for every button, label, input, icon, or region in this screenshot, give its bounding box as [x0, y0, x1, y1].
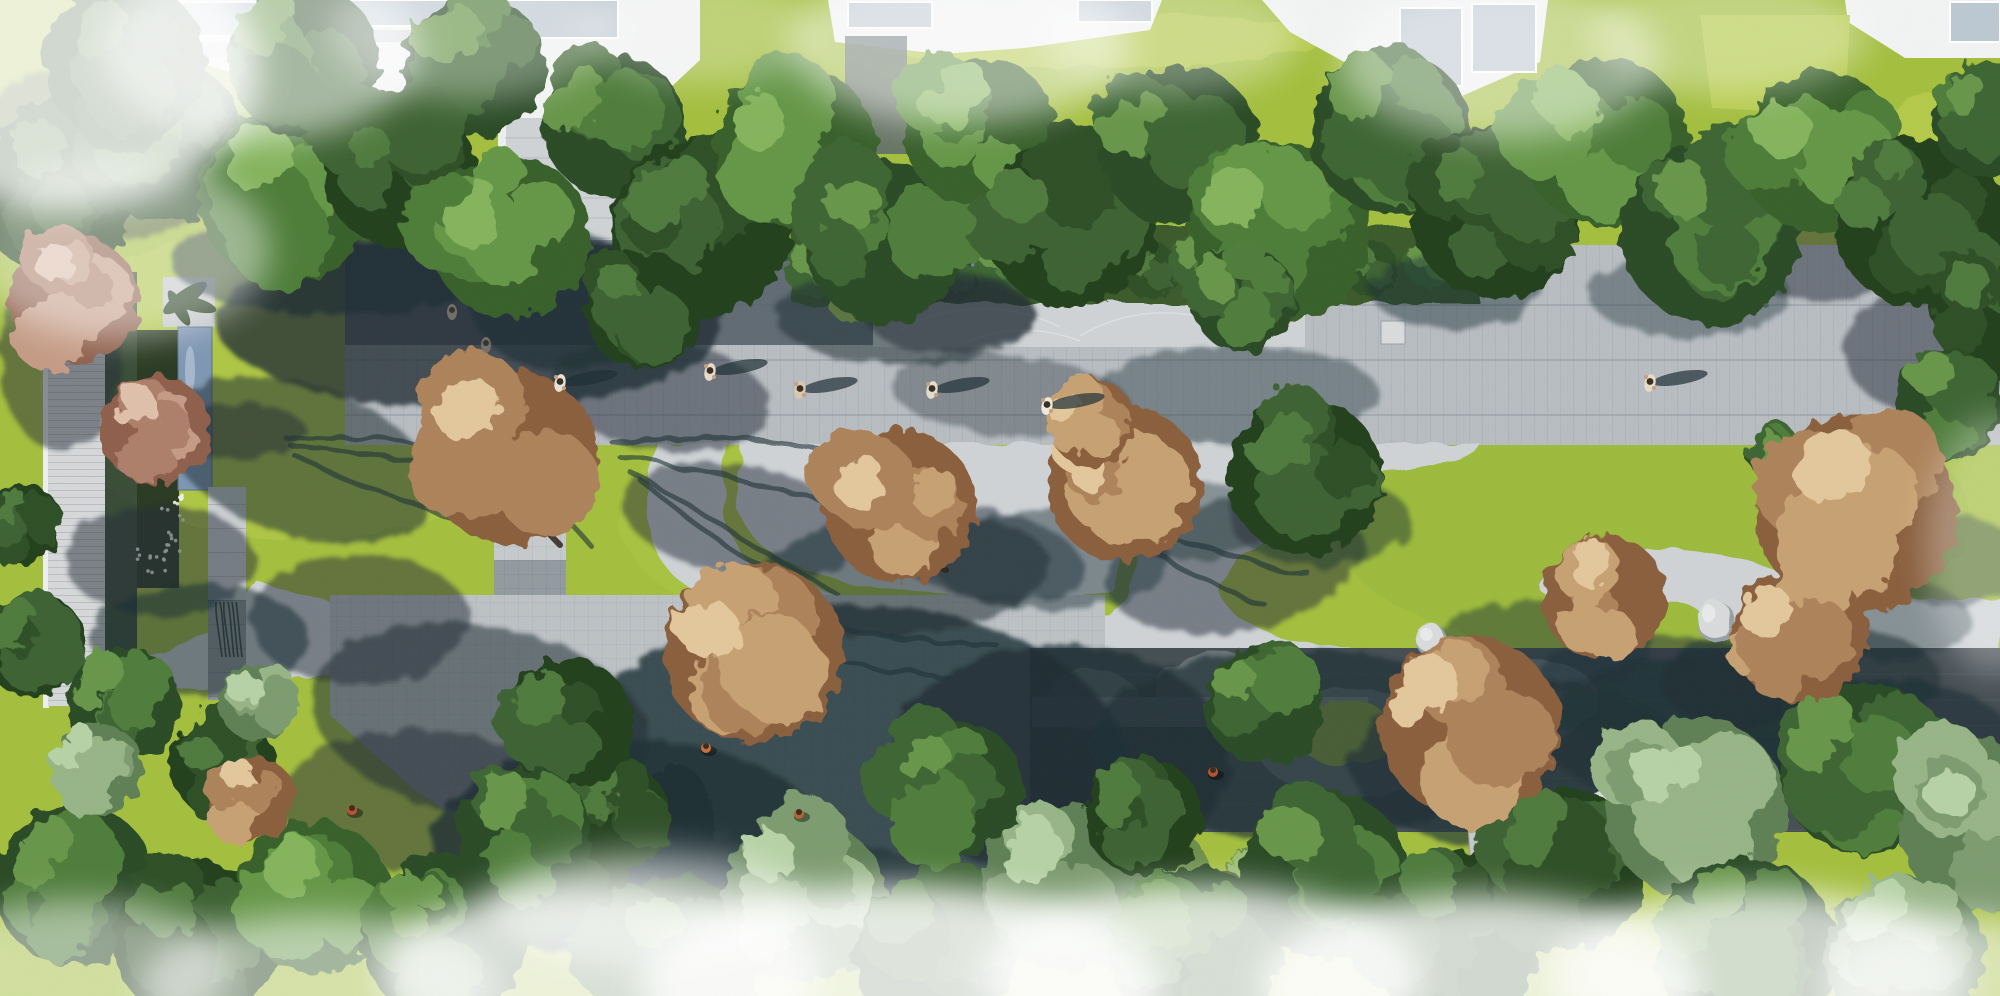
film-grain: [0, 0, 2000, 996]
scene-svg: [0, 0, 2000, 996]
landscape-aerial-rendering: [0, 0, 2000, 996]
